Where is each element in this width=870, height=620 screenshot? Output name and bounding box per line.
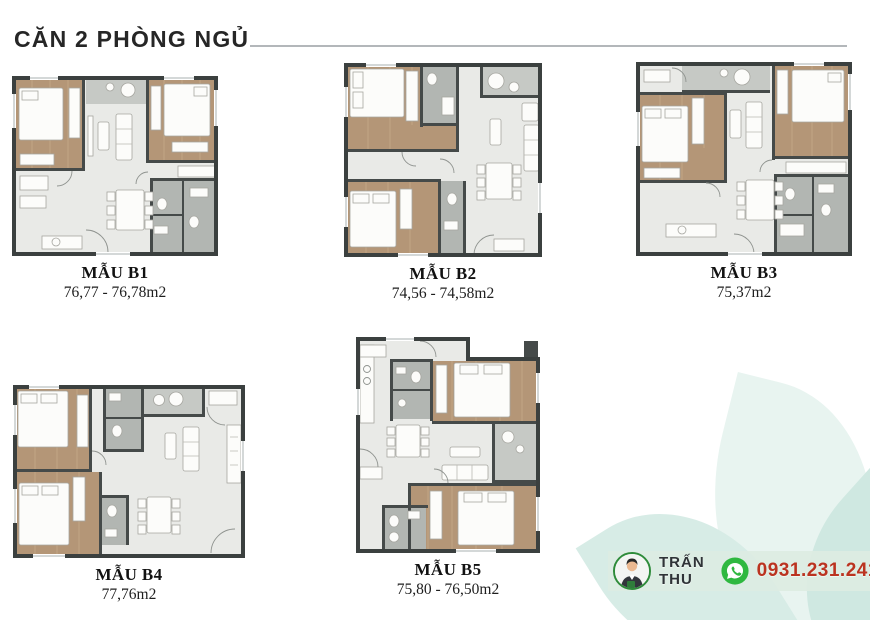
plan-b1-area: 76,77 - 76,78m2	[12, 284, 218, 302]
plan-b3-name: MẪU B3	[636, 263, 852, 283]
phone-number[interactable]: 0931.231.241	[757, 560, 870, 582]
floorplan-b4: MẪU B4 77,76m2	[13, 385, 245, 604]
whatsapp-icon[interactable]	[721, 557, 749, 585]
plan-b5-area: 75,80 - 76,50m2	[356, 581, 540, 599]
plan-b1-name: MẪU B1	[12, 263, 218, 283]
agent-name: TRẤN THU	[659, 554, 705, 588]
floorplan-b4-graphic	[13, 385, 245, 558]
floorplan-b3-graphic	[636, 62, 852, 256]
plan-b2-name: MẪU B2	[344, 264, 542, 284]
contact-bar: TRẤN THU 0931.231.241	[608, 551, 870, 591]
floorplan-b3: MẪU B3 75,37m2	[636, 62, 852, 302]
title-divider-line	[250, 45, 847, 47]
floorplan-b5-graphic	[356, 337, 540, 553]
plan-b4-name: MẪU B4	[13, 565, 245, 585]
floorplan-b5: MẪU B5 75,80 - 76,50m2	[356, 337, 540, 599]
brochure-page: CĂN 2 PHÒNG NGỦ	[0, 0, 870, 620]
floorplan-b2: MẪU B2 74,56 - 74,58m2	[344, 63, 542, 303]
page-title: CĂN 2 PHÒNG NGỦ	[14, 26, 249, 53]
plan-b5-name: MẪU B5	[356, 560, 540, 580]
plan-b4-area: 77,76m2	[13, 586, 245, 604]
plan-b3-area: 75,37m2	[636, 284, 852, 302]
floorplan-b1: MẪU B1 76,77 - 76,78m2	[12, 76, 218, 302]
agent-avatar	[613, 552, 651, 590]
floorplan-b1-graphic	[12, 76, 218, 256]
agent-photo-icon	[615, 554, 649, 588]
floorplan-b2-graphic	[344, 63, 542, 257]
plan-b2-area: 74,56 - 74,58m2	[344, 285, 542, 303]
